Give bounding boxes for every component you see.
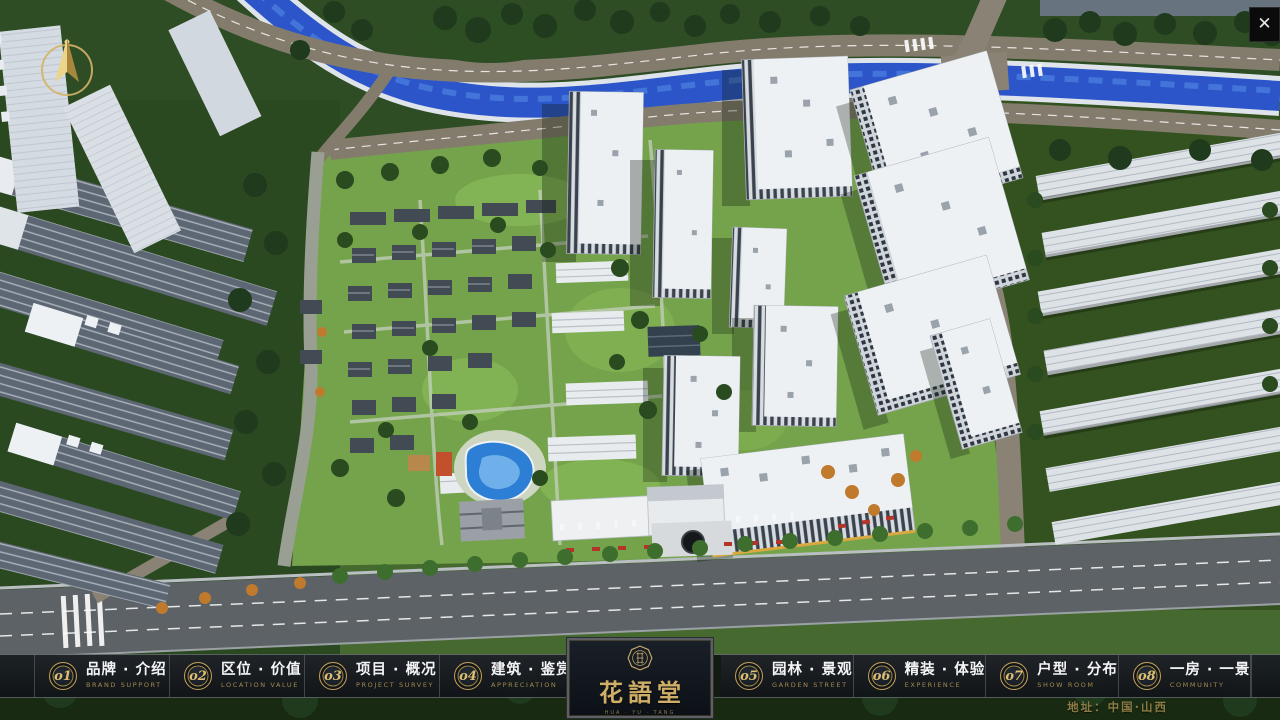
nav-number-medallion: o8 (1133, 662, 1161, 690)
nav-item-project[interactable]: o3 项目 · 概况 PROJECT SURVEY (305, 655, 440, 697)
nav-label-zh: 建筑 · 鉴赏 (491, 663, 572, 679)
nav-number-medallion: o6 (868, 662, 896, 690)
nav-label-zh: 项目 · 概况 (356, 663, 437, 679)
nav-label-en: BRAND SUPPORT (86, 682, 167, 689)
project-tagline: HUA · YU · TANG (605, 710, 676, 716)
nav-label-en: COMMUNITY (1170, 682, 1251, 689)
nav-label-en: PROJECT SURVEY (356, 682, 437, 689)
nav-item-interior[interactable]: o6 精装 · 体验 EXPERIENCE (854, 655, 987, 697)
nav-label-en: EXPERIENCE (905, 682, 986, 689)
app-window: ✕ o1 品牌 · 介绍 BRAND SUPPORT o2 区位 · 价值 LO… (0, 0, 1280, 720)
nav-item-floorplan[interactable]: o7 户型 · 分布 SHOW ROOM (986, 655, 1119, 697)
nav-number-medallion: o2 (184, 662, 212, 690)
nav-label-zh: 精装 · 体验 (905, 663, 986, 679)
nav-label-en: SHOW ROOM (1037, 682, 1118, 689)
nav-item-location[interactable]: o2 区位 · 价值 LOCATION VALUE (170, 655, 305, 697)
nav-item-garden[interactable]: o5 园林 · 景观 GARDEN STREET (721, 655, 854, 697)
nav-number-medallion: o4 (454, 662, 482, 690)
nav-number-medallion: o5 (735, 662, 763, 690)
nav-number-medallion: o3 (319, 662, 347, 690)
close-button[interactable]: ✕ (1249, 7, 1280, 42)
site-plan-render (0, 0, 1280, 720)
nav-number-medallion: o7 (1000, 662, 1028, 690)
nav-label-en: APPRECIATION (491, 682, 572, 689)
nav-label-zh: 户型 · 分布 (1037, 663, 1118, 679)
nav-item-brand[interactable]: o1 品牌 · 介绍 BRAND SUPPORT (35, 655, 170, 697)
nav-number-medallion: o1 (49, 662, 77, 690)
nav-label-zh: 一房 · 一景 (1170, 663, 1251, 679)
navbar-left-spacer (0, 655, 35, 697)
nav-label-zh: 园林 · 景观 (772, 663, 853, 679)
nav-item-community[interactable]: o8 一房 · 一景 COMMUNITY (1119, 655, 1252, 697)
nav-label-en: GARDEN STREET (772, 682, 853, 689)
project-title: 花語堂 (594, 673, 686, 708)
seal-emblem-icon (624, 644, 656, 672)
nav-item-architecture[interactable]: o4 建筑 · 鉴赏 APPRECIATION (440, 655, 575, 697)
compass-icon (34, 30, 100, 100)
project-address: 地址：中国·山西 (1067, 699, 1168, 715)
nav-label-zh: 区位 · 价值 (221, 663, 302, 679)
project-logo-panel[interactable]: 花語堂 HUA · YU · TANG (567, 638, 713, 718)
navbar-right-spacer (1251, 655, 1280, 697)
nav-label-en: LOCATION VALUE (221, 682, 302, 689)
nav-label-zh: 品牌 · 介绍 (86, 663, 167, 679)
